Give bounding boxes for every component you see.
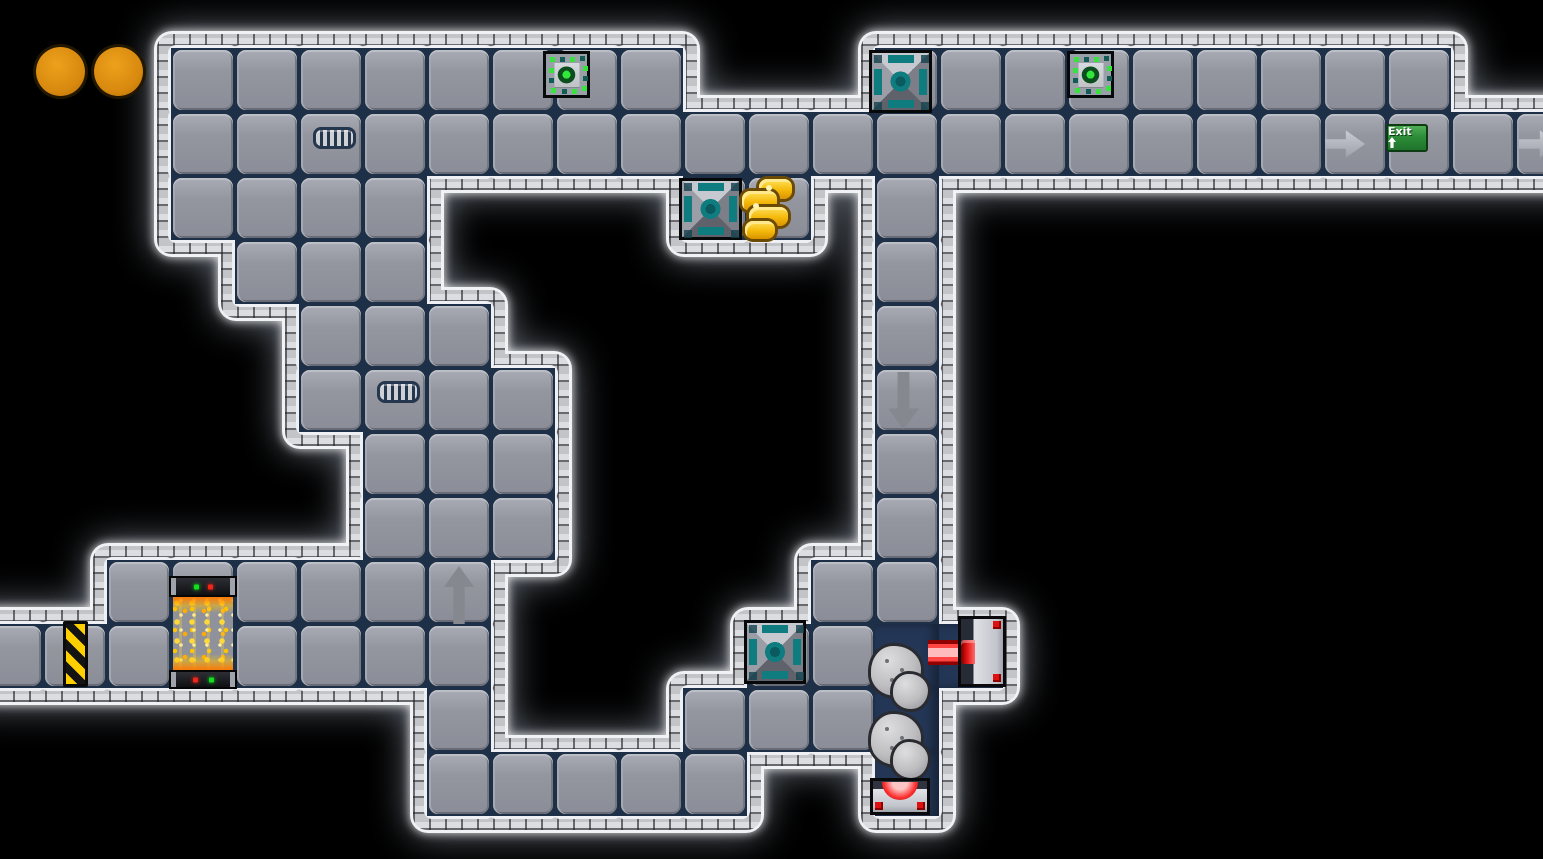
collected-orb bbox=[94, 47, 143, 96]
hud-collectibles bbox=[0, 0, 1543, 859]
game-viewport: Exit bbox=[0, 0, 1543, 859]
collected-orb bbox=[36, 47, 85, 96]
